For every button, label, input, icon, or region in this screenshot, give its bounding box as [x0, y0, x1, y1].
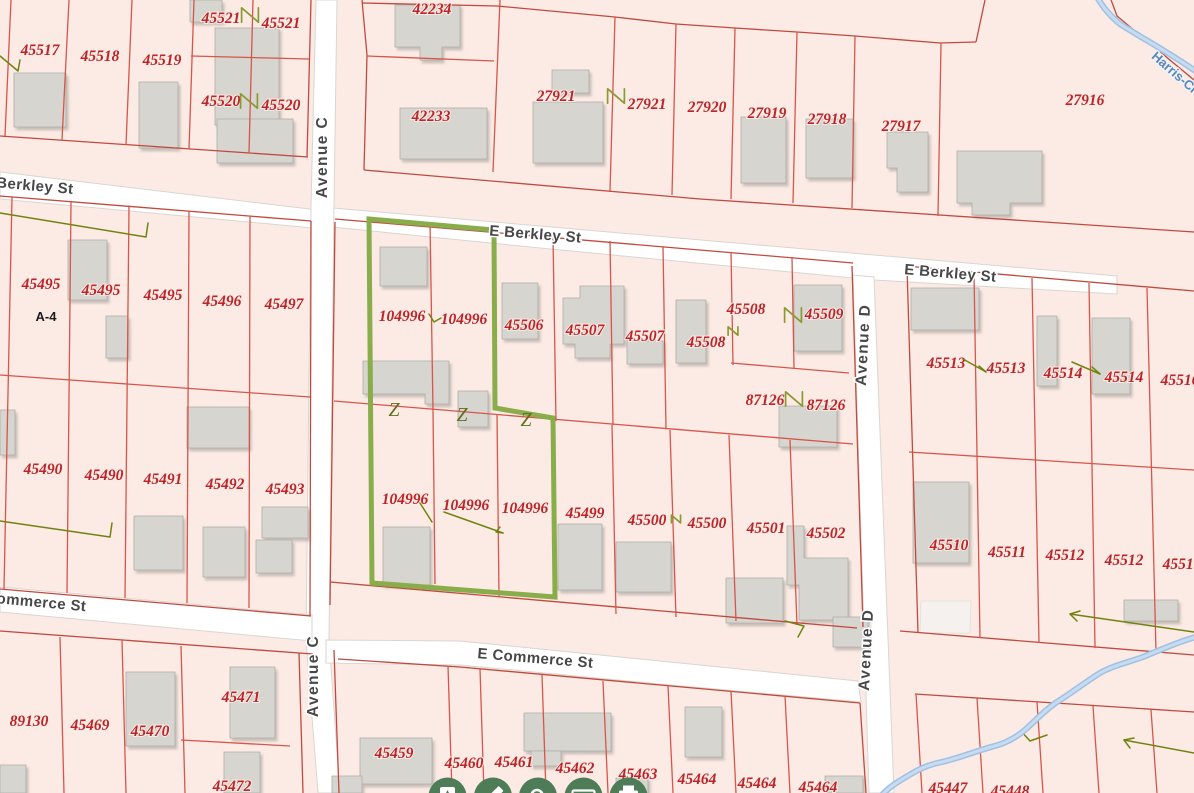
svg-text:87126: 87126: [807, 397, 846, 414]
svg-text:A-4: A-4: [36, 309, 58, 324]
svg-text:45497: 45497: [264, 296, 305, 313]
svg-text:45520: 45520: [201, 93, 241, 110]
svg-text:45464: 45464: [737, 775, 777, 792]
svg-text:45519: 45519: [142, 52, 182, 69]
svg-text:45490: 45490: [23, 461, 63, 478]
svg-text:45495: 45495: [143, 287, 183, 304]
svg-text:45512: 45512: [1104, 552, 1144, 569]
svg-text:45461: 45461: [494, 754, 534, 771]
svg-text:45471: 45471: [221, 689, 261, 706]
svg-text:42233: 42233: [411, 108, 451, 125]
svg-text:45496: 45496: [202, 293, 242, 310]
svg-text:45470: 45470: [130, 723, 170, 740]
svg-text:27916: 27916: [1065, 92, 1105, 109]
svg-text:45507: 45507: [565, 322, 606, 339]
svg-text:45517: 45517: [20, 42, 61, 59]
svg-text:45508: 45508: [686, 334, 726, 351]
svg-text:104996: 104996: [379, 308, 426, 325]
svg-text:45469: 45469: [70, 717, 110, 734]
svg-text:45490: 45490: [84, 467, 124, 484]
svg-text:Avenue C: Avenue C: [305, 635, 322, 717]
svg-text:45507: 45507: [625, 328, 666, 345]
svg-text:45521: 45521: [261, 15, 301, 32]
svg-text:45512: 45512: [1045, 547, 1085, 564]
svg-text:104996: 104996: [441, 311, 488, 328]
svg-text:45495: 45495: [21, 276, 61, 293]
svg-text:45495: 45495: [81, 282, 121, 299]
svg-text:45506: 45506: [504, 317, 544, 334]
svg-text:45447: 45447: [928, 780, 969, 793]
svg-text:27920: 27920: [687, 99, 727, 116]
svg-text:45513: 45513: [926, 355, 966, 372]
svg-text:45491: 45491: [143, 471, 183, 488]
svg-text:27921: 27921: [627, 96, 667, 113]
svg-text:45460: 45460: [444, 755, 484, 772]
svg-text:89130: 89130: [10, 713, 49, 730]
svg-text:27918: 27918: [807, 111, 847, 128]
svg-text:27917: 27917: [881, 118, 922, 135]
svg-text:45500: 45500: [687, 515, 727, 532]
svg-text:45502: 45502: [806, 525, 846, 542]
svg-text:45493: 45493: [265, 481, 305, 498]
svg-text:45459: 45459: [374, 745, 414, 762]
svg-text:45500: 45500: [627, 512, 667, 529]
svg-text:45509: 45509: [804, 306, 844, 323]
svg-text:87126: 87126: [746, 392, 785, 409]
svg-text:45472: 45472: [212, 778, 252, 793]
svg-text:Avenue C: Avenue C: [314, 116, 331, 198]
svg-text:45513: 45513: [986, 360, 1026, 377]
svg-text:45520: 45520: [261, 97, 301, 114]
svg-text:104996: 104996: [502, 500, 549, 517]
svg-text:45518: 45518: [80, 48, 120, 65]
svg-text:27921: 27921: [536, 88, 576, 105]
svg-text:27919: 27919: [747, 105, 787, 122]
svg-text:45516: 45516: [1160, 372, 1194, 389]
svg-text:45492: 45492: [205, 476, 245, 493]
svg-text:45448: 45448: [990, 783, 1030, 793]
svg-text:45501: 45501: [746, 520, 786, 537]
svg-text:42234: 42234: [412, 1, 452, 18]
svg-text:45462: 45462: [555, 760, 595, 777]
svg-text:Z: Z: [456, 404, 468, 426]
svg-text:45499: 45499: [565, 505, 605, 522]
svg-text:Z: Z: [388, 399, 400, 421]
svg-text:45464: 45464: [798, 779, 838, 793]
svg-text:45508: 45508: [726, 301, 766, 318]
svg-text:45514: 45514: [1043, 365, 1083, 382]
svg-text:104996: 104996: [443, 497, 490, 514]
svg-text:45515: 45515: [1162, 556, 1194, 573]
svg-text:45510: 45510: [929, 537, 969, 554]
svg-text:45521: 45521: [201, 10, 241, 27]
svg-text:45464: 45464: [677, 771, 717, 788]
svg-text:45511: 45511: [987, 544, 1026, 561]
svg-text:Z: Z: [520, 409, 532, 431]
svg-text:45514: 45514: [1104, 369, 1144, 386]
